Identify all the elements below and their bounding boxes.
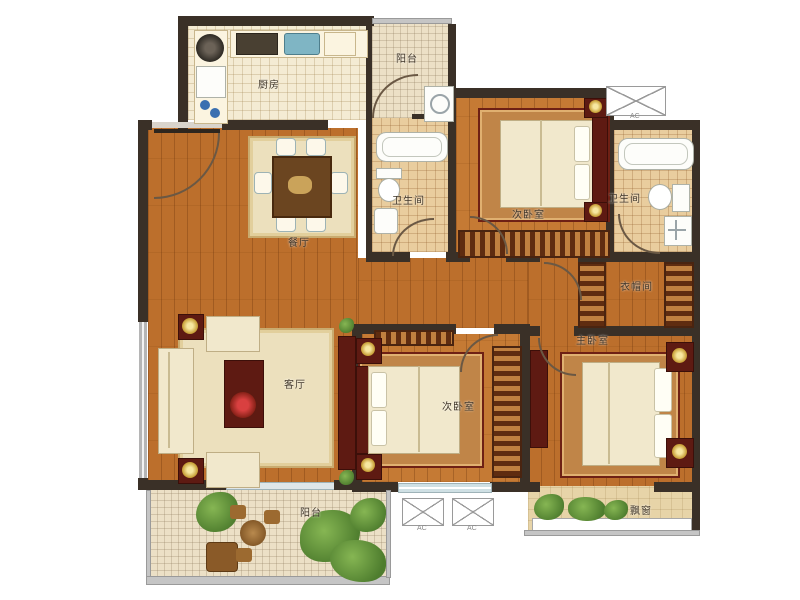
room-label-bath1: 卫生间 xyxy=(392,192,425,207)
dining-chair xyxy=(254,172,272,194)
wall xyxy=(138,120,152,130)
wall xyxy=(490,482,540,492)
room-label-bay-window: 飘窗 xyxy=(630,502,652,517)
shower-drain xyxy=(664,216,692,246)
room-label-bedroom-top: 次卧室 xyxy=(512,206,545,221)
dining-chair xyxy=(330,172,348,194)
cloakroom-wardrobe-left xyxy=(578,262,606,328)
ac-platform xyxy=(452,498,494,526)
bedroom-top-headboard xyxy=(592,116,608,212)
dining-chair xyxy=(276,138,296,156)
bathroom-sink xyxy=(374,208,398,234)
kitchen-cabinet xyxy=(324,32,356,56)
wok-burner-icon xyxy=(196,34,224,62)
bathtub-inner xyxy=(382,137,442,157)
lamp-icon xyxy=(589,100,602,113)
toilet xyxy=(648,184,672,210)
bedroom-bottom-dresser xyxy=(374,330,454,346)
sofa-back-line xyxy=(168,352,170,448)
lamp-icon xyxy=(589,204,602,217)
hallway-floor xyxy=(358,258,528,328)
living-room-window xyxy=(139,322,147,478)
room-label-balcony-bottom: 阳台 xyxy=(300,504,322,519)
wall xyxy=(528,326,540,336)
washing-machine-drum-icon xyxy=(430,94,450,114)
wall xyxy=(222,120,328,130)
room-label-balcony-top: 阳台 xyxy=(396,50,418,65)
room-label-cloakroom: 衣帽间 xyxy=(620,278,653,293)
room-label-kitchen: 厨房 xyxy=(258,76,280,91)
wall xyxy=(606,120,700,130)
bay-window-rail xyxy=(524,530,700,536)
cooktop-icon xyxy=(196,66,226,98)
cloakroom-wardrobe-right xyxy=(664,262,694,328)
wall xyxy=(654,482,700,492)
stove-icon xyxy=(236,33,278,55)
table-centerpiece xyxy=(288,176,312,194)
bed-fold-line xyxy=(418,366,420,452)
armchair xyxy=(206,316,260,352)
balcony-bottom-rail-left xyxy=(146,490,151,578)
lamp-icon xyxy=(672,444,687,459)
sofa xyxy=(158,348,194,454)
room-label-dining: 餐厅 xyxy=(288,234,310,249)
planter-pot xyxy=(206,542,238,572)
bedroom-bottom-window xyxy=(398,483,492,493)
lamp-icon xyxy=(182,462,198,478)
wall xyxy=(448,88,614,98)
lamp-icon xyxy=(672,348,687,363)
room-label-master: 主卧室 xyxy=(576,332,609,347)
ac-label: AC xyxy=(467,525,477,532)
drain-cross xyxy=(668,229,686,231)
lamp-icon xyxy=(361,458,375,472)
flower-decor xyxy=(230,392,256,418)
lamp-icon xyxy=(361,342,375,356)
pillow xyxy=(371,372,387,408)
dining-chair xyxy=(306,138,326,156)
pillow xyxy=(371,410,387,446)
floor-plan: AC AC AC 厨房 阳台 卫生间 次卧室 卫生间 衣帽间 餐厅 客厅 次卧室… xyxy=(0,0,800,600)
wall xyxy=(448,24,456,252)
pillow xyxy=(654,368,672,412)
wall xyxy=(138,478,148,490)
room-label-bath2: 卫生间 xyxy=(608,190,641,205)
wall xyxy=(138,130,148,322)
bathtub-inner xyxy=(624,143,688,165)
balcony-chair xyxy=(236,548,252,562)
tv-console xyxy=(338,336,356,470)
kitchen-sink-icon xyxy=(284,33,320,55)
bed-fold-line xyxy=(540,120,542,206)
balcony-table xyxy=(240,520,266,546)
ac-label: AC xyxy=(630,113,640,120)
bed-fold-line xyxy=(608,362,610,464)
armchair xyxy=(206,452,260,488)
kitchen-fixture-icon xyxy=(200,100,210,110)
lamp-icon xyxy=(182,318,198,334)
pillow xyxy=(574,164,590,200)
balcony-chair xyxy=(264,510,280,524)
ac-platform xyxy=(402,498,444,526)
balcony-top-rail xyxy=(372,18,452,24)
plant-icon xyxy=(568,497,606,521)
balcony-bottom-rail-right xyxy=(386,490,391,578)
kitchen-fixture-icon xyxy=(210,108,220,118)
master-tv-cabinet xyxy=(530,350,548,448)
wall xyxy=(178,16,188,130)
balcony-chair xyxy=(230,505,246,519)
ac-label: AC xyxy=(417,525,427,532)
toilet-tank xyxy=(672,184,690,212)
room-label-living: 客厅 xyxy=(284,376,306,391)
ac-platform xyxy=(606,86,666,116)
wall xyxy=(366,24,372,252)
master-bed xyxy=(582,362,660,466)
pillow xyxy=(574,126,590,162)
room-label-bedroom-bottom: 次卧室 xyxy=(442,398,475,413)
wall xyxy=(178,16,374,26)
